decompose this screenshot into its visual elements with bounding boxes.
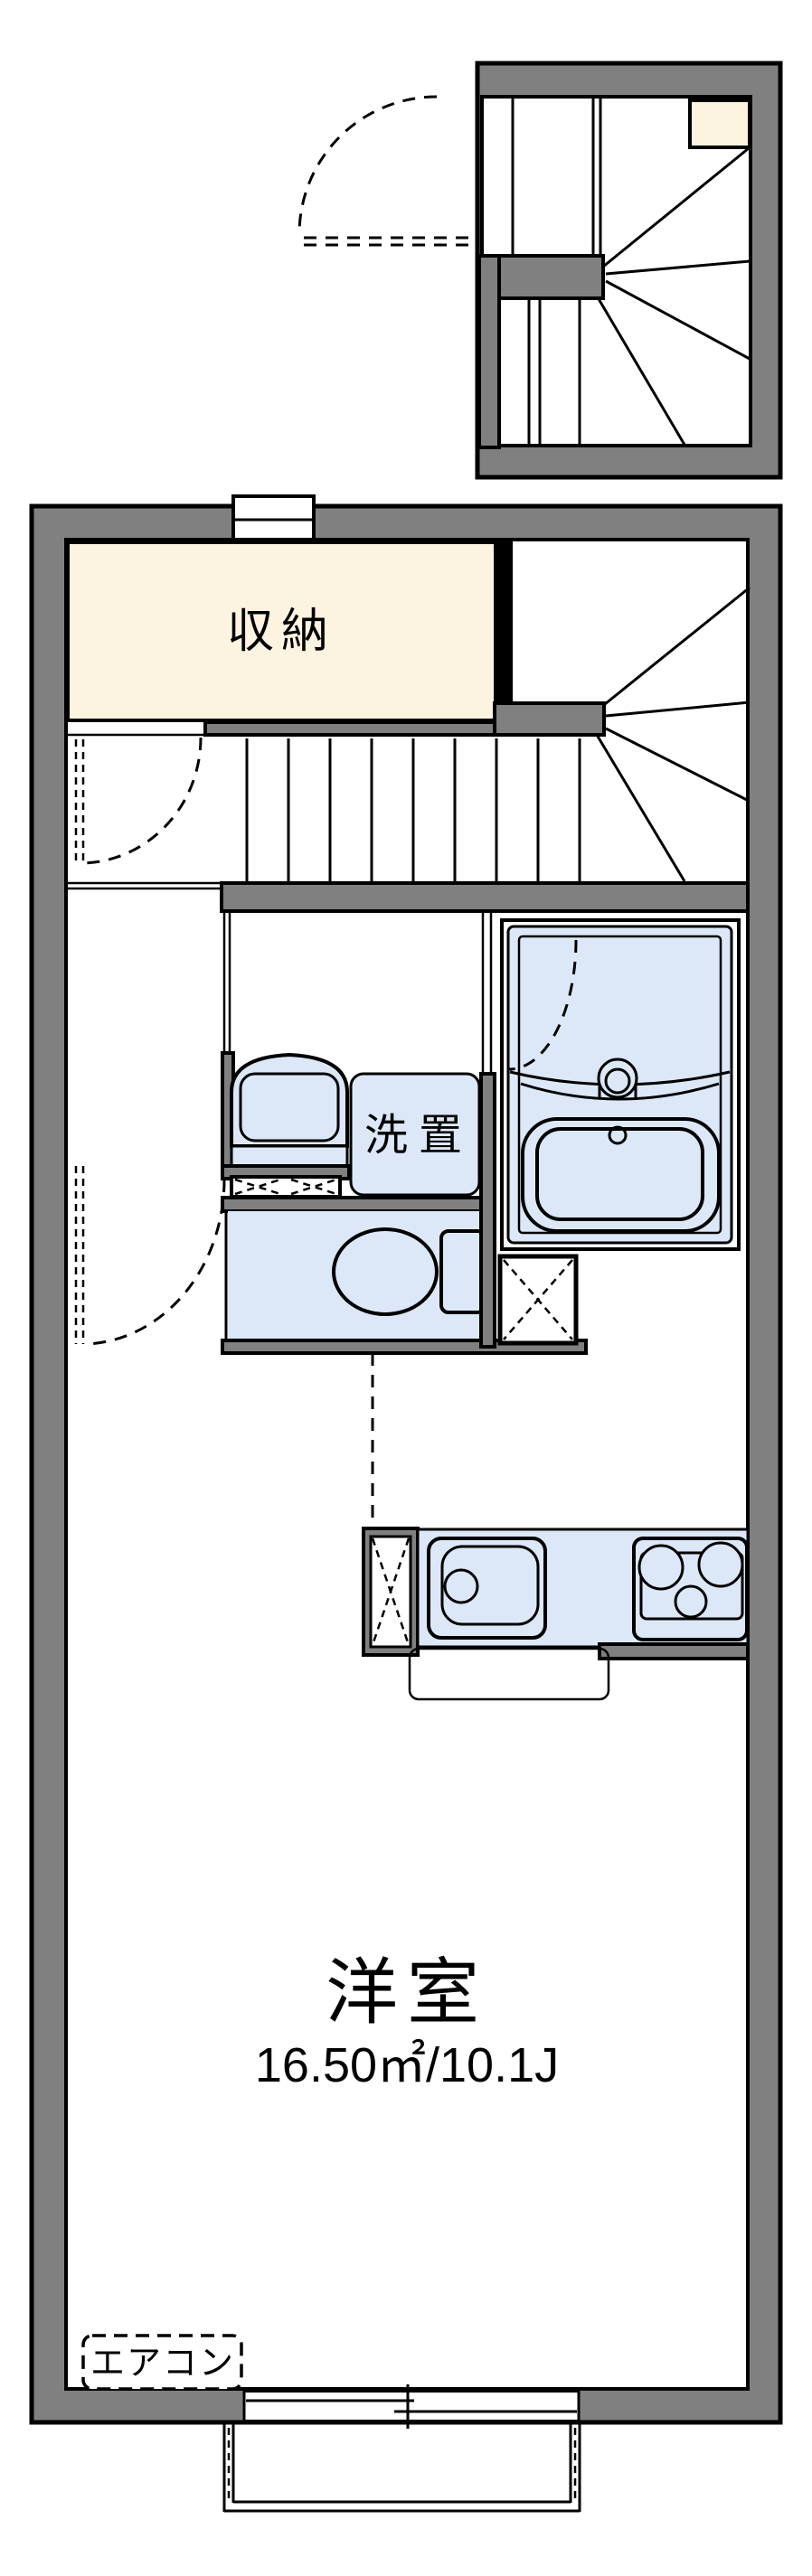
toilet-top-wall xyxy=(222,1198,490,1211)
refrigerator-space xyxy=(364,1528,418,1655)
washer-place-label: 洗置 xyxy=(364,1112,473,1160)
floor-plan-drawing: 収納 xyxy=(0,0,812,2576)
stair-landing-wall xyxy=(495,703,604,735)
hatch-box xyxy=(231,1177,340,1197)
stair-side-wall xyxy=(479,256,499,447)
hatch-box-frame xyxy=(231,1177,340,1197)
aircon-label: エアコン xyxy=(90,2345,235,2383)
kitchen-side-wall xyxy=(600,1644,748,1659)
room-area-label: 16.50㎡/10.1J xyxy=(255,2038,559,2092)
upper-stair-room xyxy=(299,63,780,477)
room-label: 洋室 xyxy=(326,1952,488,2033)
stair-bottom-wall xyxy=(222,883,748,911)
stove-burner xyxy=(639,1546,683,1589)
storage-label: 収納 xyxy=(227,606,335,658)
storage-bottom-wall xyxy=(205,722,496,735)
balcony xyxy=(224,2424,580,2512)
storage-right-wall xyxy=(495,540,513,703)
floor-plan-page: 収納 xyxy=(0,0,812,2576)
main-floor-plan: 収納 xyxy=(32,496,780,2512)
window-opening xyxy=(244,2389,579,2422)
toilet-tank xyxy=(441,1231,485,1312)
sink-drain xyxy=(445,1570,477,1603)
bathroom-left-wall xyxy=(481,1074,495,1347)
shaft-hatch-box xyxy=(500,1256,576,1343)
stove-burner xyxy=(699,1543,742,1586)
washbasin-counter xyxy=(231,1146,347,1166)
toilet-bowl xyxy=(334,1229,437,1314)
air-conditioner-space: エアコン xyxy=(83,2336,241,2389)
window-frame xyxy=(233,496,314,540)
washbasin-bowl xyxy=(241,1074,338,1141)
sliding-window xyxy=(244,2384,579,2429)
stove-burner xyxy=(675,1586,706,1617)
top-window xyxy=(233,496,314,540)
storage-room: 収納 xyxy=(66,540,513,735)
door-swing-arc xyxy=(299,97,437,234)
upper-landing-closet xyxy=(690,100,750,147)
